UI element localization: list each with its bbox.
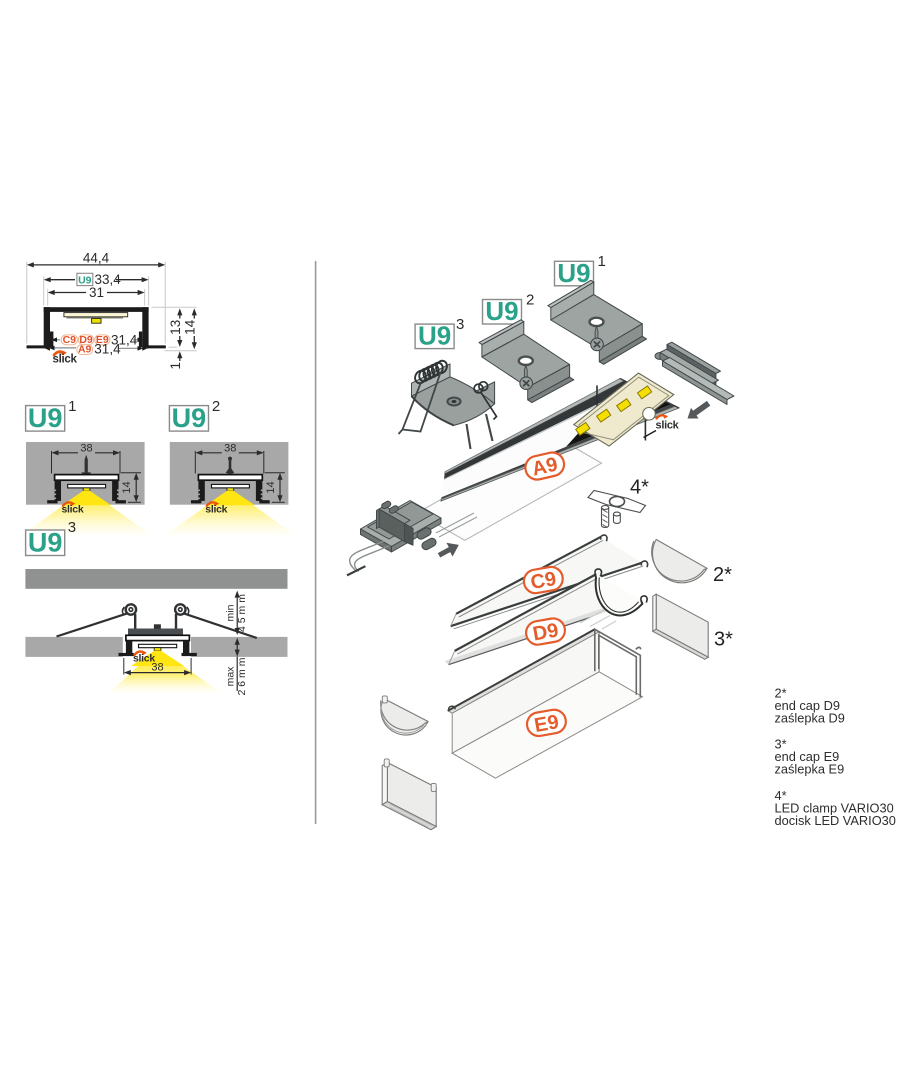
svg-text:14: 14	[183, 319, 198, 335]
svg-text:14: 14	[121, 481, 133, 493]
svg-text:4*: 4*	[630, 477, 649, 499]
svg-text:D9: D9	[531, 619, 560, 645]
svg-text:slick: slick	[62, 504, 84, 516]
svg-text:31,4: 31,4	[94, 341, 121, 356]
svg-text:2: 2	[212, 398, 220, 415]
svg-text:U9: U9	[28, 403, 63, 433]
svg-text:C9: C9	[529, 568, 558, 594]
svg-text:4 5 m m: 4 5 m m	[236, 594, 248, 632]
svg-text:zaślepka D9: zaślepka D9	[775, 710, 845, 725]
svg-text:2*: 2*	[713, 564, 732, 586]
svg-text:zaślepka E9: zaślepka E9	[775, 761, 845, 776]
svg-text:14: 14	[265, 481, 277, 493]
svg-text:1: 1	[68, 398, 76, 415]
svg-text:A9: A9	[78, 344, 92, 356]
svg-text:2: 2	[526, 292, 534, 309]
svg-text:U9: U9	[418, 321, 451, 351]
svg-text:38: 38	[151, 661, 163, 673]
svg-text:1: 1	[598, 253, 606, 270]
svg-text:38: 38	[80, 442, 92, 454]
svg-text:U9: U9	[485, 296, 518, 326]
svg-text:3*: 3*	[714, 629, 733, 651]
svg-text:U9: U9	[28, 527, 63, 557]
svg-text:3: 3	[68, 519, 76, 536]
svg-text:U9: U9	[172, 403, 207, 433]
svg-text:min: min	[225, 604, 237, 621]
svg-text:38: 38	[224, 442, 236, 454]
svg-text:C9: C9	[63, 334, 77, 346]
svg-text:1: 1	[168, 362, 183, 370]
svg-text:E9: E9	[533, 711, 561, 737]
svg-text:13: 13	[168, 320, 183, 335]
svg-text:2 6 m m: 2 6 m m	[236, 657, 248, 695]
svg-text:3: 3	[456, 316, 464, 333]
svg-text:slick: slick	[656, 420, 680, 432]
svg-text:slick: slick	[53, 354, 78, 366]
svg-text:docisk LED VARIO30: docisk LED VARIO30	[775, 813, 896, 828]
svg-text:max: max	[225, 666, 237, 687]
svg-text:44,4: 44,4	[83, 250, 110, 265]
svg-text:slick: slick	[205, 504, 227, 516]
svg-text:31: 31	[89, 285, 104, 300]
